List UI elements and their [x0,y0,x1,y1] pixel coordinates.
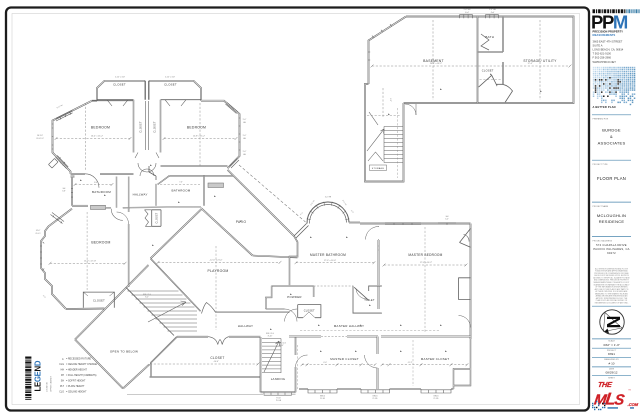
svg-text:SUITE A: SUITE A [593,44,603,48]
svg-text:CLOSET: CLOSET [155,212,158,223]
svg-text:BEDROOM: BEDROOM [91,241,110,245]
svg-text:MASTER CLOSET: MASTER CLOSET [330,357,359,361]
svg-text:PL B5: PL B5 [434,398,439,400]
svg-text:15'-8" x 15'-2": 15'-8" x 15'-2" [193,136,206,138]
svg-text:CLG: CLG [59,391,64,393]
svg-text:PLAYROOM: PLAYROOM [208,269,229,273]
svg-text:5'-0": 5'-0" [243,119,247,121]
svg-text:MASTER BATHROOM: MASTER BATHROOM [310,253,346,257]
svg-text:# 10: # 10 [608,361,614,365]
svg-text:&: & [610,134,613,139]
svg-text:8391: 8391 [608,352,615,356]
svg-text:16'-10": 16'-10" [37,135,43,137]
svg-text:PPM: PPM [591,11,628,32]
svg-text:6'-8": 6'-8" [62,191,66,193]
svg-text:= FULL HEIGHT (CABINETS): = FULL HEIGHT (CABINETS) [66,374,97,377]
svg-text:17'-0" x 16'-2": 17'-0" x 16'-2" [420,262,433,264]
svg-text:-11'-2": -11'-2" [408,362,413,364]
svg-text:5'-0": 5'-0" [243,135,247,137]
svg-text:LOCATION: LOCATION [46,381,49,392]
svg-text:THE: THE [597,380,612,389]
svg-text:PL B5: PL B5 [320,398,325,400]
svg-text:F 562-256-2966: F 562-256-2966 [593,56,612,60]
svg-text:17'-4": 17'-4" [527,63,532,65]
svg-text:574 CHAPALA DRIVE: 574 CHAPALA DRIVE [596,243,627,247]
svg-text:BURDGE: BURDGE [602,128,621,133]
svg-text:OPEN TO BELOW: OPEN TO BELOW [110,349,138,353]
svg-text:STORAGE: STORAGE [372,167,385,170]
svg-text:MASTER HALLWAY: MASTER HALLWAY [334,324,365,328]
svg-text:3665 EAST 4TH STREET: 3665 EAST 4TH STREET [593,40,623,44]
svg-text:5'-10" x 3'-8": 5'-10" x 3'-8" [165,77,175,79]
svg-text:PL B5: PL B5 [373,398,378,400]
svg-text:WWW.PPMCO.NET: WWW.PPMCO.NET [593,60,617,64]
svg-text:HALLWAY: HALLWAY [238,324,254,328]
svg-text:MEASUREMENTS: MEASUREMENTS [593,33,616,37]
svg-text:HALLWAY: HALLWAY [133,193,148,197]
svg-text:5'-0" HH: 5'-0" HH [325,197,332,199]
svg-text:PATIO: PATIO [236,220,247,224]
svg-text:BEDROOM: BEDROOM [91,126,110,130]
svg-text:CLOSET: CLOSET [154,121,157,133]
svg-text:PROJECT NAME: PROJECT NAME [593,205,609,208]
svg-text:8'-4": 8'-4" [94,182,98,184]
svg-text:SH: SH [61,380,65,382]
svg-text:CLOSET: CLOSET [164,83,177,87]
svg-text:90272: 90272 [607,251,616,255]
svg-text:LEGEND: LEGEND [34,360,43,391]
svg-text:CLOSET: CLOSET [482,68,494,72]
svg-text:CLG 9': CLG 9' [35,233,41,235]
svg-text:N: N [603,316,623,329]
svg-text:RESIDENCE: RESIDENCE [599,219,625,224]
svg-text:MASTER BEDROOM: MASTER BEDROOM [408,253,442,257]
svg-text:15'-0" x 17'-8": 15'-0" x 17'-8" [84,261,97,263]
svg-text:3/32" = 1'-0": 3/32" = 1'-0" [603,343,620,347]
svg-text:5'-0": 5'-0" [243,151,247,153]
svg-text:= PLATE HEIGHT: = PLATE HEIGHT [66,385,85,388]
svg-text:BATH: BATH [485,35,494,39]
svg-text:BATHROOM: BATHROOM [92,190,111,194]
svg-text:A BETTER PLAN: A BETTER PLAN [593,105,616,109]
svg-text:ASSOCIATES: ASSOCIATES [598,141,626,146]
svg-text:BEDROOM: BEDROOM [187,126,206,130]
svg-text:-14'-6": -14'-6" [213,361,219,363]
svg-text:CLOSET: CLOSET [140,121,143,133]
svg-text:HH: HH [61,370,65,372]
svg-text:= SOFFIT HEIGHT: = SOFFIT HEIGHT [66,380,86,382]
svg-text:PACIFIC PALISADES, CA: PACIFIC PALISADES, CA [593,247,629,251]
svg-text:▲: ▲ [62,358,64,361]
svg-text:7'-6": 7'-6" [179,182,183,184]
svg-text:PLT: PLT [60,386,65,388]
svg-text:LANDING: LANDING [271,377,286,381]
svg-text:= RECESSED FIXTURE: = RECESSED FIXTURE [66,359,92,361]
svg-text:= CEILING HEIGHT: = CEILING HEIGHT [66,391,87,393]
svg-text:TOILET: TOILET [364,298,375,302]
svg-text:8'-0": 8'-0" [145,297,149,299]
svg-text:BATHROOM: BATHROOM [171,189,190,193]
svg-text:5'-10" x 3'-8": 5'-10" x 3'-8" [115,77,125,79]
svg-text:LONG BEACH, CA, 90814: LONG BEACH, CA, 90814 [593,48,624,52]
svg-text:CLOSET: CLOSET [113,83,126,87]
svg-text:FH: FH [61,375,64,377]
svg-text:17'-0" x 10'-6": 17'-0" x 10'-6" [324,260,337,262]
svg-text:CLOSET: CLOSET [304,309,315,312]
svg-text:PRECISION PROPERTY: PRECISION PROPERTY [593,29,624,33]
svg-text:FLOOR PLAN: FLOOR PLAN [597,176,626,181]
svg-text:PROJECT TYPE: PROJECT TYPE [593,164,609,166]
svg-text:UPPER CABINET: UPPER CABINET [50,375,53,392]
svg-text:POWDER: POWDER [287,295,302,299]
svg-text:= CEILING HEIGHT CHANGE: = CEILING HEIGHT CHANGE [66,363,97,366]
svg-text:PREPARED FOR: PREPARED FOR [593,118,609,121]
svg-text:16'-4" x 15'-2": 16'-4" x 15'-2" [91,136,104,138]
svg-text:= HEADER HEIGHT: = HEADER HEIGHT [66,369,87,372]
svg-text:T 562-621-9100: T 562-621-9100 [593,52,612,56]
svg-text:24'-6" x 18'-2": 24'-6" x 18'-2" [430,63,443,65]
svg-text:9'-0": 9'-0" [389,98,391,102]
svg-text:PROJECT ADDRESS: PROJECT ADDRESS [593,239,613,242]
svg-text:ENGINEERING DOCUMENT OF ANY KI: ENGINEERING DOCUMENT OF ANY KIND. [595,302,629,305]
svg-text:16'-0": 16'-0" [36,230,41,232]
svg-text:CLG: CLG [59,364,64,366]
svg-text:PL HB: PL HB [276,400,282,402]
svg-text:CLG 9'-0": CLG 9'-0" [36,138,44,140]
svg-text:8'-10": 8'-10" [268,335,273,337]
svg-text:CLOSET: CLOSET [210,356,224,360]
svg-text:CLOSET: CLOSET [93,298,105,302]
svg-text:.COM: .COM [627,402,639,407]
svg-text:08/29/12: 08/29/12 [605,371,617,375]
svg-text:MASTER CLOSET: MASTER CLOSET [421,357,450,361]
svg-text:5'-0": 5'-0" [445,219,449,221]
svg-text:-9'-0": -9'-0" [323,362,327,364]
svg-text:MCLOUGHLIN: MCLOUGHLIN [597,213,626,218]
